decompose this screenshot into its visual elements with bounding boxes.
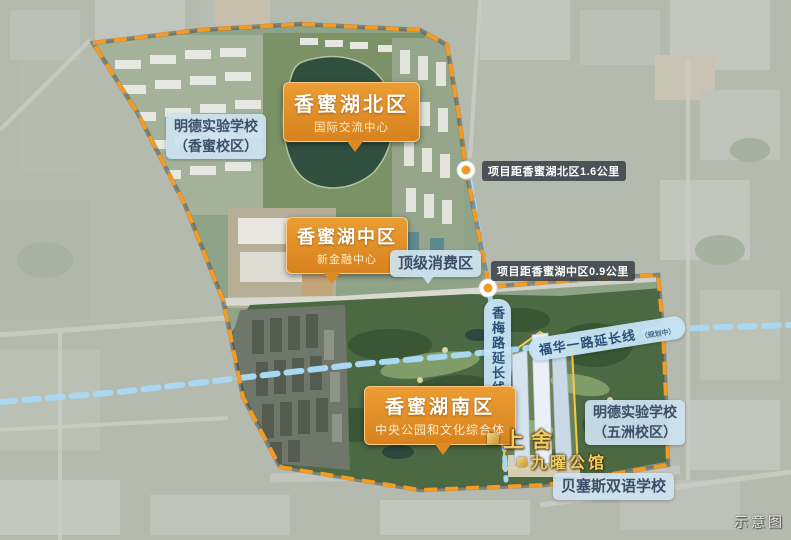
distance-badge-middle: 项目距香蜜湖中区0.9公里 bbox=[491, 261, 635, 281]
road-xiangmei-name: 香梅路延长线 bbox=[490, 306, 505, 396]
school-label-basis: 贝塞斯双语学校 bbox=[553, 473, 674, 500]
project-name-text: 九曜公馆 bbox=[531, 455, 607, 472]
district-south-subtitle: 中央公园和文化综合体 bbox=[375, 421, 505, 438]
district-north-title: 香蜜湖北区 bbox=[294, 88, 409, 117]
poi-consumption-text: 顶级消费区 bbox=[398, 255, 473, 272]
school-basis-text: 贝塞斯双语学校 bbox=[561, 478, 666, 495]
distance-marker-middle bbox=[479, 279, 497, 297]
project-brand-logo-icon bbox=[487, 433, 499, 445]
watermark: 示意图 bbox=[734, 512, 785, 532]
distance-marker-north bbox=[457, 161, 475, 179]
schematic-map: 香蜜湖北区 国际交流中心 明德实验学校 （香蜜校区） 香蜜湖中区 新金融中心 顶… bbox=[0, 0, 791, 540]
school-mingde-wuzhou-name: 明德实验学校 bbox=[593, 403, 677, 423]
district-north-subtitle: 国际交流中心 bbox=[294, 119, 409, 135]
district-south-title: 香蜜湖南区 bbox=[375, 392, 505, 419]
district-middle-subtitle: 新金融中心 bbox=[297, 251, 397, 267]
school-mingde-wuzhou-campus: （五洲校区） bbox=[593, 423, 677, 443]
watermark-text: 示意图 bbox=[734, 514, 785, 530]
project-name-logo-icon bbox=[517, 457, 527, 467]
poi-label-consumption: 顶级消费区 bbox=[390, 250, 481, 277]
road-fuhua-note: （规划中） bbox=[640, 328, 676, 340]
distance-middle-text: 项目距香蜜湖中区0.9公里 bbox=[497, 266, 629, 278]
distance-north-text: 项目距香蜜湖北区1.6公里 bbox=[488, 166, 620, 178]
school-mingde-xiangmi-name: 明德实验学校 bbox=[174, 117, 258, 137]
district-middle-title: 香蜜湖中区 bbox=[297, 223, 397, 249]
project-name-wordmark: 九曜公馆 bbox=[517, 449, 607, 473]
distance-badge-north: 项目距香蜜湖北区1.6公里 bbox=[482, 161, 626, 181]
school-mingde-xiangmi-campus: （香蜜校区） bbox=[174, 137, 258, 157]
district-callout-north: 香蜜湖北区 国际交流中心 bbox=[283, 82, 420, 142]
school-label-mingde-xiangmi: 明德实验学校 （香蜜校区） bbox=[166, 114, 266, 159]
school-label-mingde-wuzhou: 明德实验学校 （五洲校区） bbox=[585, 400, 685, 445]
